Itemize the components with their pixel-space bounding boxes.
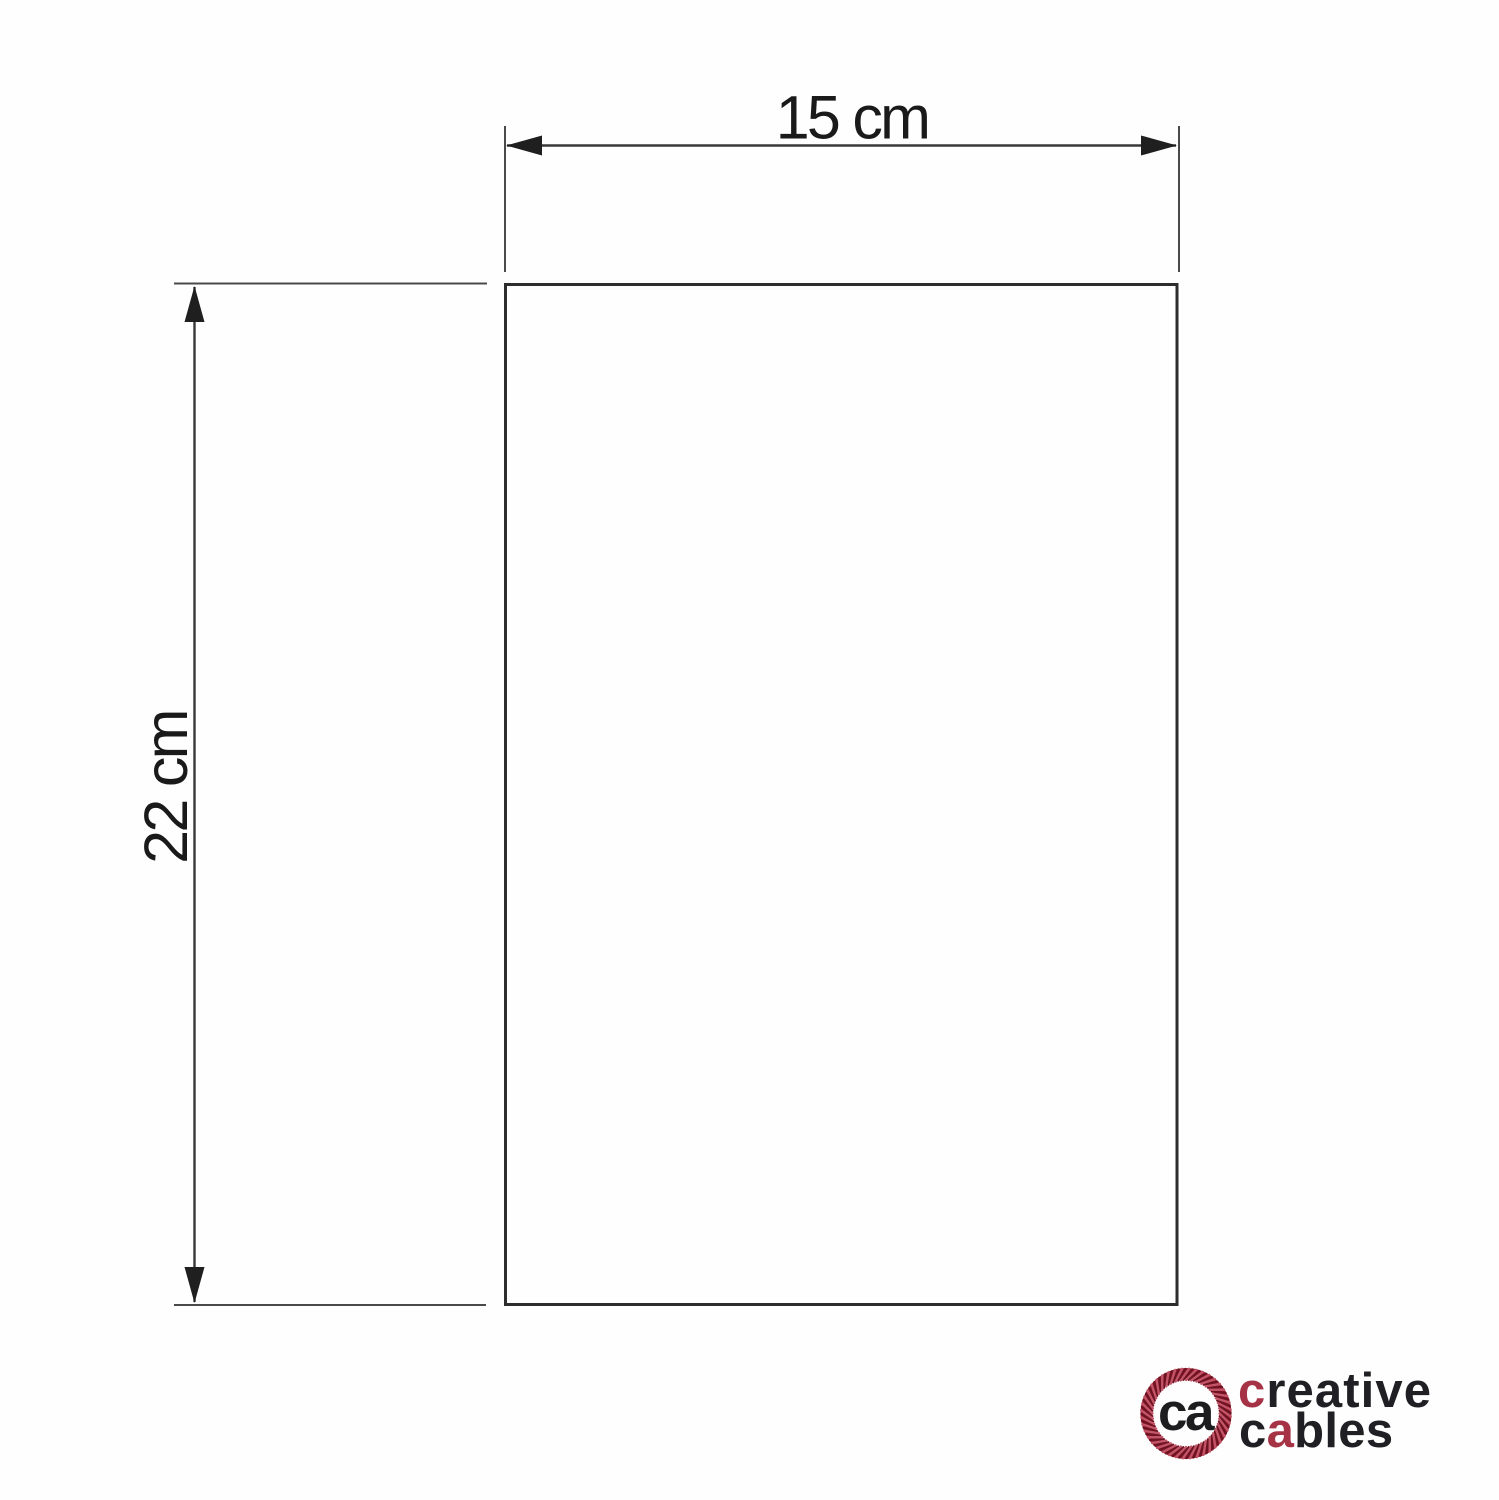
svg-text:22 cm: 22 cm xyxy=(132,711,200,864)
svg-text:cables: cables xyxy=(1239,1404,1393,1458)
svg-text:ca: ca xyxy=(1158,1383,1215,1442)
svg-text:15 cm: 15 cm xyxy=(776,84,929,152)
